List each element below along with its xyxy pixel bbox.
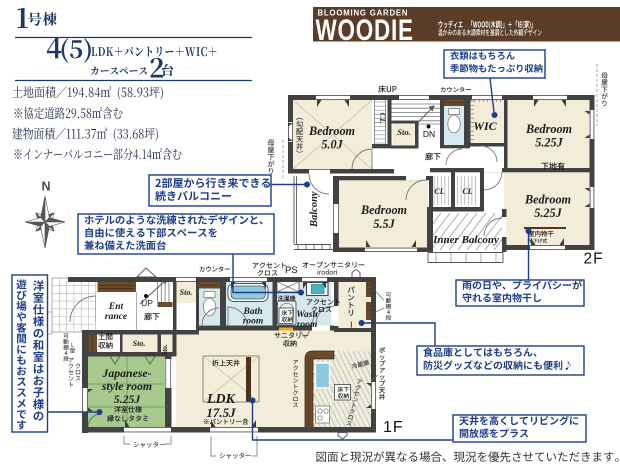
svg-text:Sto.: Sto. [160,344,169,356]
svg-text:5.0J: 5.0J [321,138,343,152]
svg-text:room: room [297,320,318,330]
svg-text:Bath: Bath [242,307,262,317]
svg-text:1F: 1F [383,419,404,436]
svg-text:WOODIE: WOODIE [316,13,414,47]
svg-text:CL: CL [434,187,444,196]
svg-text:Bedroom: Bedroom [524,193,571,207]
svg-text:Bedroom: Bedroom [308,124,355,138]
svg-text:Sto.: Sto. [133,339,146,348]
svg-text:Balcony: Balcony [309,191,320,228]
svg-text:17.5J: 17.5J [206,405,236,420]
svg-text:PS: PS [285,265,298,276]
svg-text:CL: CL [378,113,388,124]
svg-text:CL: CL [462,187,472,196]
svg-text:Japanese-: Japanese- [101,366,151,380]
svg-text:Sto.: Sto. [397,127,410,137]
svg-text:Bedroom: Bedroom [525,122,572,136]
svg-text:Sto.: Sto. [180,288,193,297]
svg-text:style room: style room [101,379,152,393]
svg-text:Inner Balcony: Inner Balcony [432,234,499,246]
svg-text:5.25J: 5.25J [114,392,142,406]
svg-text:Wash: Wash [296,310,317,320]
svg-text:WIC: WIC [473,119,497,133]
svg-text:UP: UP [141,298,153,308]
svg-text:2F: 2F [584,251,604,268]
svg-text:DN: DN [423,129,435,139]
svg-text:N: N [41,180,50,194]
svg-text:Ent: Ent [108,302,124,312]
svg-text:room: room [243,317,264,327]
svg-text:5.25J: 5.25J [534,206,562,220]
svg-text:5.25J: 5.25J [535,136,563,150]
svg-text:rance: rance [105,312,128,322]
svg-text:Bedroom: Bedroom [360,203,407,217]
svg-text:5.5J: 5.5J [373,217,395,231]
